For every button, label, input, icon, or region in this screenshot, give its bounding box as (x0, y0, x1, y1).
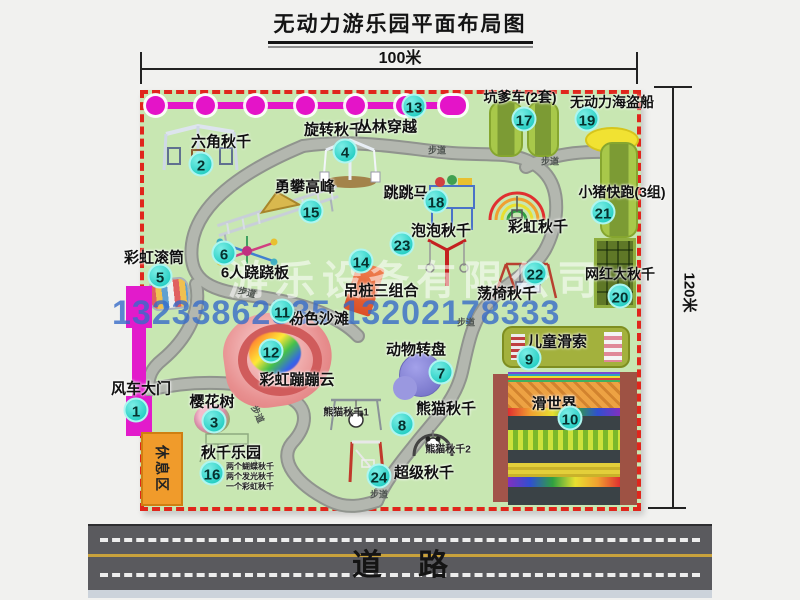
slide-world-side (620, 372, 637, 505)
road: 道路 (88, 524, 712, 592)
page-title: 无动力游乐园平面布局图 (268, 8, 533, 44)
attraction-badge-20: 20 (608, 284, 633, 309)
zipline-node-icon (196, 96, 215, 115)
path-label: 步道 (428, 144, 446, 157)
slide-world-side (493, 374, 508, 502)
dimension-top-tick-left (140, 52, 142, 84)
attraction-label-16: 秋千乐园 (201, 442, 261, 463)
road-label: 道路 (88, 540, 712, 584)
attraction-badge-19: 19 (575, 107, 600, 132)
attraction-label-15: 勇攀高峰 (275, 176, 335, 197)
attraction-label-22: 荡椅秋千 (477, 283, 537, 304)
title-area: 无动力游乐园平面布局图 (0, 8, 800, 48)
plan-canvas: 无动力游乐园平面布局图 100米 120米 (0, 0, 800, 600)
zipline-end-icon (440, 96, 466, 115)
path-label: 步道 (457, 316, 475, 329)
attraction-badge-21: 21 (591, 200, 616, 225)
attraction-badge-15: 15 (299, 199, 324, 224)
attraction-label-21: 小猪快跑(3组) (578, 182, 665, 202)
attraction-badge-11: 11 (270, 299, 295, 324)
attraction-label-11: 粉色沙滩 (289, 308, 349, 329)
attraction-label-4: 旋转秋千 (304, 119, 364, 140)
path-label: 步道 (541, 155, 559, 168)
attraction-label-7: 动物转盘 (386, 339, 446, 360)
attraction-badge-22: 22 (523, 261, 548, 286)
dimension-top-tick-right (636, 52, 638, 84)
attraction-label-2: 六角秋千 (191, 131, 251, 152)
zipline-node-icon (296, 96, 315, 115)
attraction-label-12: 彩虹蹦蹦云 (259, 369, 334, 390)
attraction-badge-8: 8 (390, 412, 415, 437)
attraction-badge-24: 24 (367, 464, 392, 489)
rest-area-label: 休息区 (152, 445, 172, 493)
attraction-label-8: 熊猫秋千 (416, 398, 476, 419)
attraction-badge-17: 17 (512, 107, 537, 132)
attraction-label-20: 网红大秋千 (585, 264, 655, 284)
rest-area: 休息区 (141, 432, 183, 506)
zipline-node-icon (146, 96, 165, 115)
attraction-badge-18: 18 (424, 189, 449, 214)
attraction-label-23: 泡泡秋千 (411, 220, 471, 241)
attraction-label-17: 坑爹车(2套) (483, 87, 556, 107)
attraction-badge-12: 12 (259, 339, 284, 364)
attraction-badge-7: 7 (429, 360, 454, 385)
dimension-top-line (140, 68, 637, 70)
attraction-label-13: 丛林穿越 (357, 116, 417, 137)
animal-turntable-icon (393, 376, 417, 400)
attraction-label-rainbow-swing: 彩虹秋千 (508, 216, 568, 237)
swing-note: 两个蝴蝶秋千 (226, 462, 274, 472)
attraction-badge-5: 5 (148, 264, 173, 289)
sub-label: 熊猫秋千1 (323, 404, 369, 419)
road-shoulder (88, 590, 712, 598)
attraction-badge-3: 3 (202, 409, 227, 434)
attraction-badge-6: 6 (212, 241, 237, 266)
attraction-badge-9: 9 (517, 346, 542, 371)
attraction-badge-1: 1 (124, 398, 149, 423)
attraction-label-14: 吊桩三组合 (343, 280, 418, 301)
swing-note: 两个发光秋千 (226, 472, 274, 482)
attraction-badge-13: 13 (402, 94, 427, 119)
attraction-label-18: 跳跳马 (383, 182, 428, 203)
swing-note: 一个彩虹秋千 (226, 482, 274, 492)
attraction-label-6: 6人跷跷板 (221, 262, 289, 283)
attraction-label-24: 超级秋千 (394, 462, 454, 483)
attraction-badge-2: 2 (189, 152, 214, 177)
zipline-node-icon (246, 96, 265, 115)
dimension-right-tick-top (654, 86, 692, 88)
zipline-node-icon (346, 96, 365, 115)
swing-paradise-notes: 两个蝴蝶秋千两个发光秋千一个彩虹秋千 (226, 462, 274, 492)
attraction-badge-23: 23 (390, 232, 415, 257)
kids-zipline-detail (604, 332, 622, 362)
dimension-right-tick-bottom (648, 507, 686, 509)
attraction-badge-14: 14 (349, 249, 374, 274)
dimension-right-label: 120米 (680, 263, 701, 323)
attraction-label-1: 风车大门 (111, 378, 171, 399)
dimension-right-line (672, 86, 674, 508)
attraction-badge-4: 4 (333, 139, 358, 164)
attraction-badge-16: 16 (200, 461, 225, 486)
attraction-badge-10: 10 (558, 406, 583, 431)
sub-label: 熊猫秋千2 (425, 441, 471, 456)
